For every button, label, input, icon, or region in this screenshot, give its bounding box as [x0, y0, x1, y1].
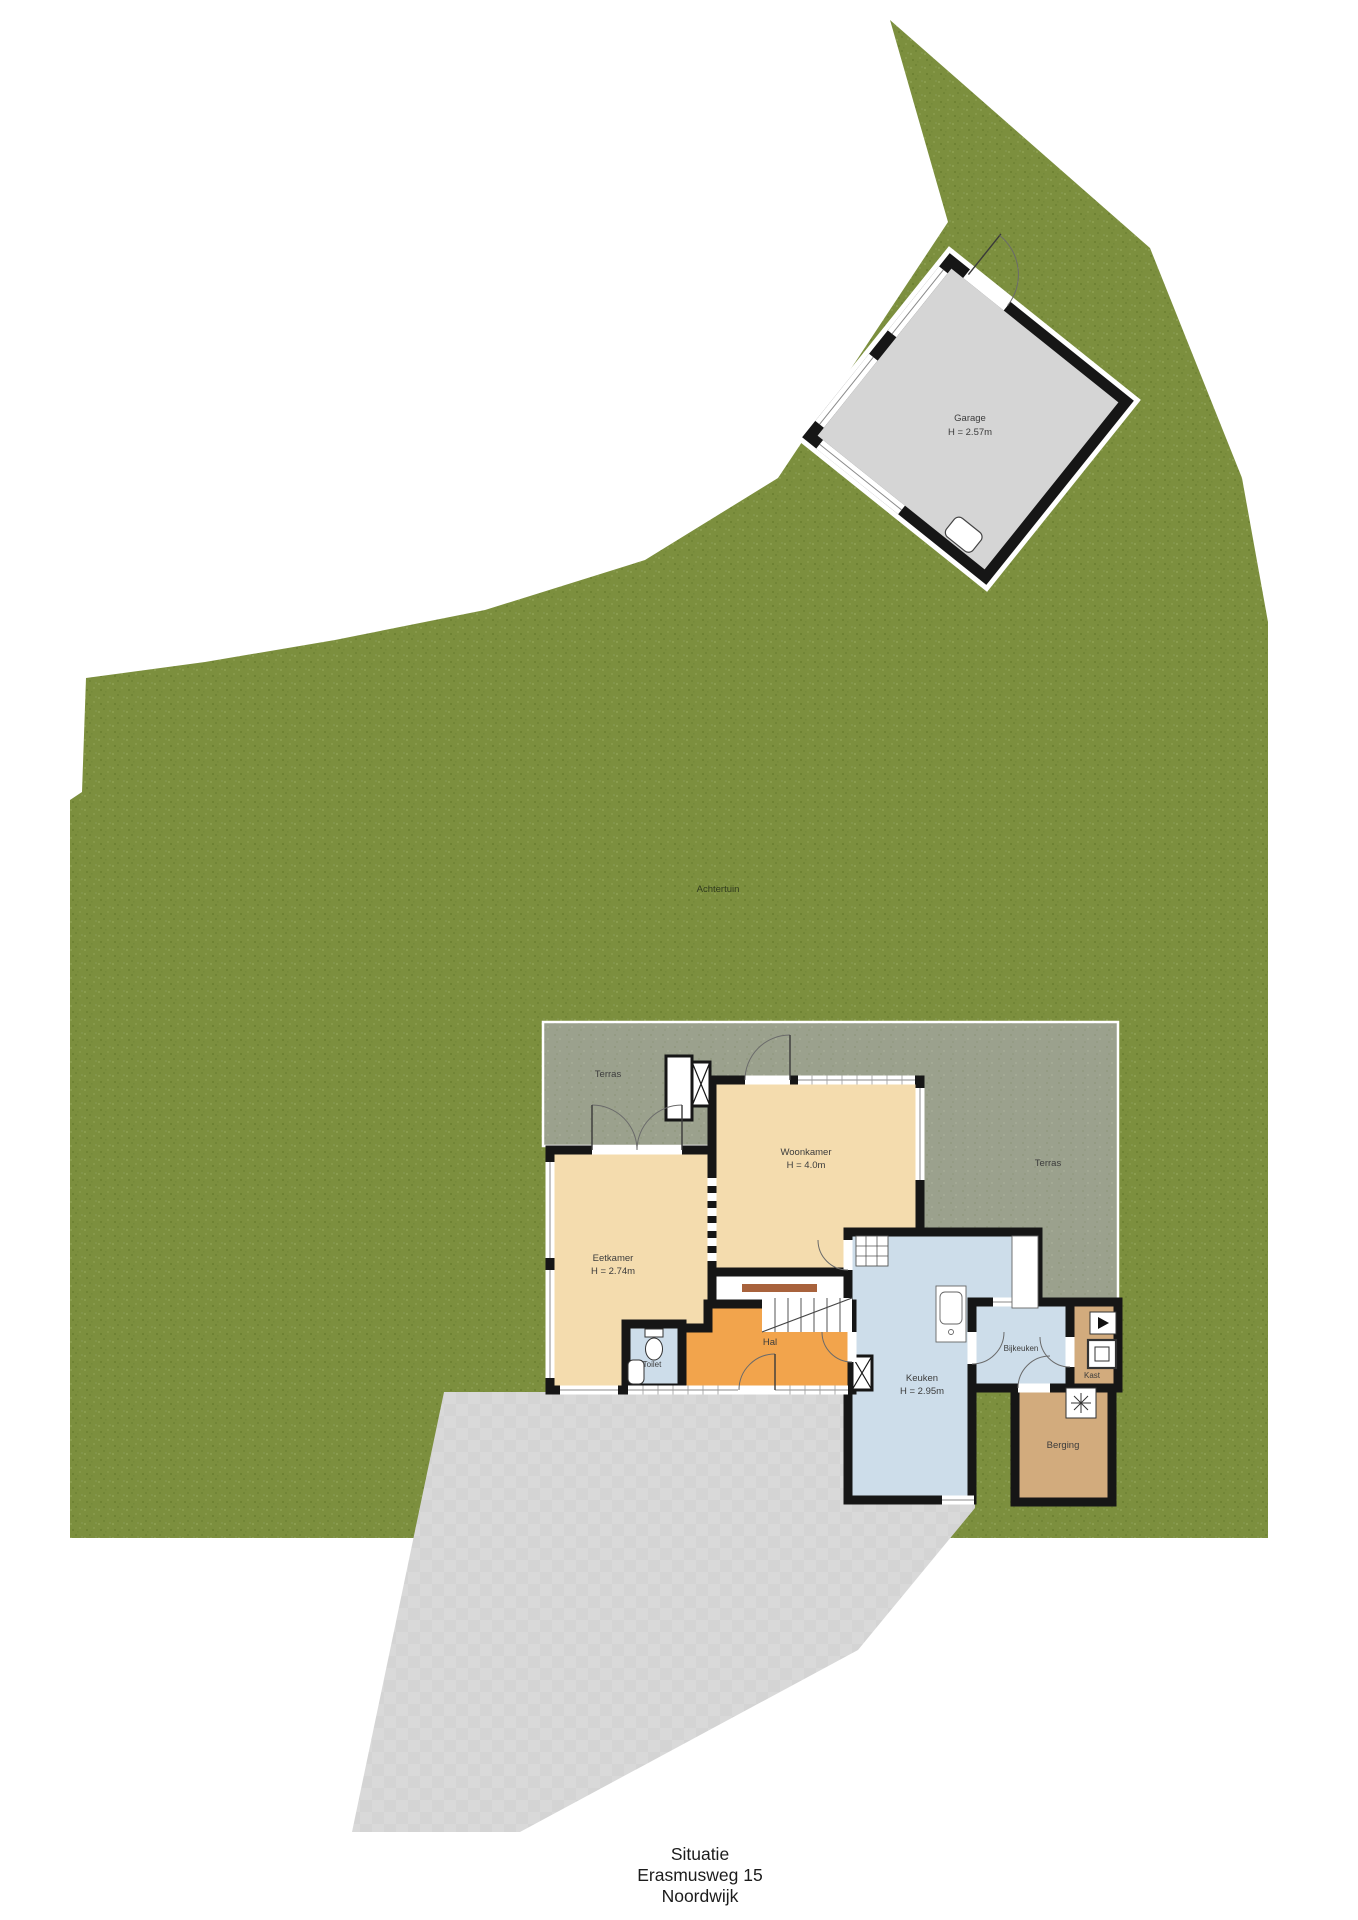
- chimney-block: [666, 1056, 692, 1120]
- label-woonkamer: Woonkamer: [780, 1147, 831, 1158]
- shaft-woonkamer: [692, 1062, 710, 1106]
- caption-address: Erasmusweg 15: [637, 1865, 762, 1885]
- toilet-sink-icon: [628, 1360, 644, 1384]
- label-hal: Hal: [763, 1337, 777, 1348]
- label-woonkamer-height: H = 4.0m: [787, 1160, 826, 1171]
- kitchen-stove-icon: [856, 1236, 888, 1266]
- situation-floorplan-page: Garage H = 2.57m Achtertuin: [0, 0, 1358, 1920]
- label-toilet: Toilet: [643, 1360, 662, 1369]
- label-eetkamer: Eetkamer: [593, 1253, 634, 1264]
- label-berging: Berging: [1047, 1440, 1080, 1451]
- garage-label: Garage: [954, 413, 986, 424]
- label-terras-right: Terras: [1035, 1158, 1062, 1169]
- backyard-label: Achtertuin: [697, 884, 740, 895]
- toilet-fixture-icon: [645, 1329, 663, 1360]
- label-eetkamer-height: H = 2.74m: [591, 1266, 635, 1277]
- floorplan-canvas: Garage H = 2.57m Achtertuin: [0, 0, 1358, 1920]
- garage-height-label: H = 2.57m: [948, 427, 992, 438]
- label-terras-left: Terras: [595, 1069, 622, 1080]
- label-keuken-height: H = 2.95m: [900, 1386, 944, 1397]
- label-bijkeuken: Bijkeuken: [1004, 1344, 1039, 1353]
- boiler-icon: [1090, 1312, 1116, 1334]
- stair-tread-accent: [742, 1284, 817, 1292]
- ventilation-unit-icon: [1066, 1388, 1096, 1418]
- washer-icon: [1088, 1340, 1116, 1368]
- kitchen-sink-icon: [936, 1286, 966, 1342]
- label-kast: Kast: [1084, 1371, 1101, 1380]
- label-keuken: Keuken: [906, 1373, 938, 1384]
- caption-title: Situatie: [671, 1844, 729, 1864]
- kitchen-counter: [1012, 1236, 1038, 1308]
- caption-city: Noordwijk: [662, 1886, 739, 1906]
